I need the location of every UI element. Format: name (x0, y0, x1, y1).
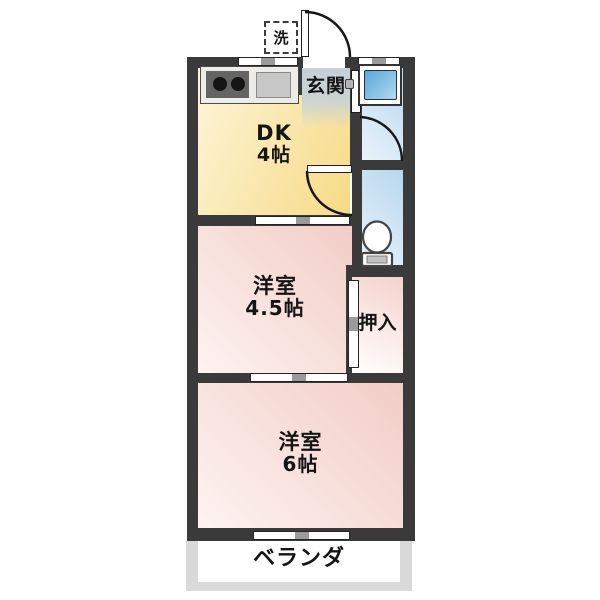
oshiire-label: 押入 (352, 312, 403, 334)
bathtub-icon (358, 64, 402, 106)
entrance-door-swing-arc (305, 12, 350, 57)
sliding-door-western45-western6 (250, 373, 348, 382)
veranda-label-text: ベランダ (253, 547, 345, 571)
genkan-label-text: 玄関 (306, 76, 346, 97)
western6-label: 洋室 6帖 (198, 429, 403, 477)
sliding-door-dk-western45 (255, 216, 350, 225)
entrance-door-leaf (301, 10, 309, 57)
laundry-space-icon: 洗 (264, 21, 298, 54)
dk-label: DK 4帖 (198, 120, 350, 168)
wall-toilet-oshiire (346, 265, 415, 277)
veranda-label: ベランダ (198, 545, 400, 573)
window-sash-tab (261, 58, 275, 65)
door-panel-tab (292, 374, 306, 381)
door-panel-tab (296, 217, 310, 224)
sink-icon (256, 72, 291, 98)
burner-icon (213, 77, 227, 91)
bathtub-inner (364, 70, 397, 100)
western6-label-line1: 洋室 (279, 431, 323, 454)
wall-dk-toilet (352, 170, 362, 277)
wall-left (187, 57, 198, 541)
wall-right (403, 57, 415, 541)
laundry-label: 洗 (273, 27, 288, 48)
window-top-kitchen (238, 57, 298, 66)
wall-bath-toilet (350, 160, 415, 170)
western6-label-line2: 6帖 (283, 454, 319, 476)
window-sash-tab (295, 532, 309, 539)
kitchen-counter-icon (200, 66, 299, 104)
dk-label-line2: 4帖 (257, 145, 291, 166)
oshiire-label-text: 押入 (358, 313, 396, 334)
genkan-label: 玄関 (302, 74, 350, 98)
window-bottom-balcony (253, 531, 350, 540)
floorplan-canvas: 洗 玄関 DK 4帖 洋室 4.5帖 押入 洋室 6帖 ベランダ (0, 0, 600, 600)
western45-label-line1: 洋室 (253, 275, 297, 298)
room-toilet (362, 170, 403, 265)
western45-label: 洋室 4.5帖 (198, 273, 352, 321)
stove-icon (206, 71, 249, 98)
western45-label-line2: 4.5帖 (245, 298, 304, 320)
dk-label-line1: DK (256, 122, 292, 145)
burner-icon (231, 77, 245, 91)
